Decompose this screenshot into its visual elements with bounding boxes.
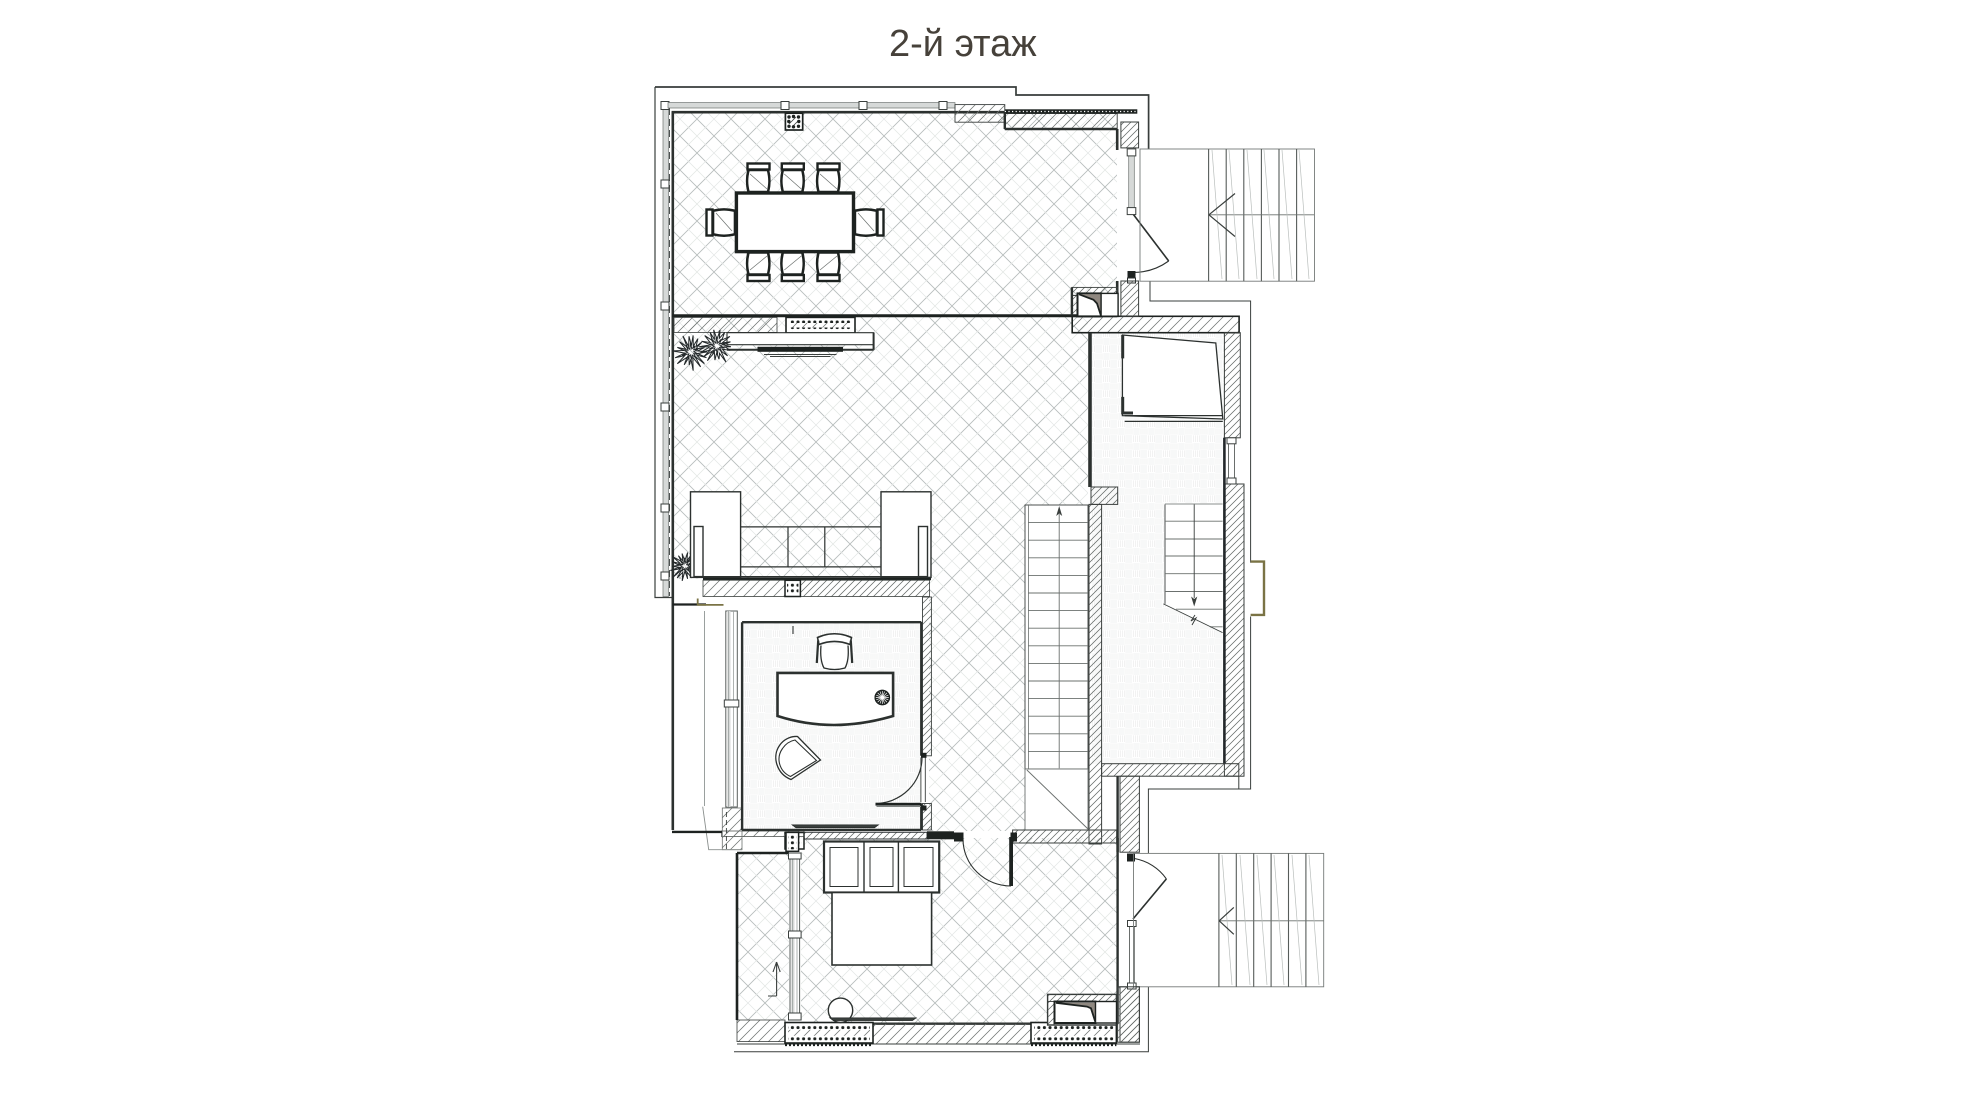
svg-text:2-й этаж: 2-й этаж (889, 23, 1037, 65)
